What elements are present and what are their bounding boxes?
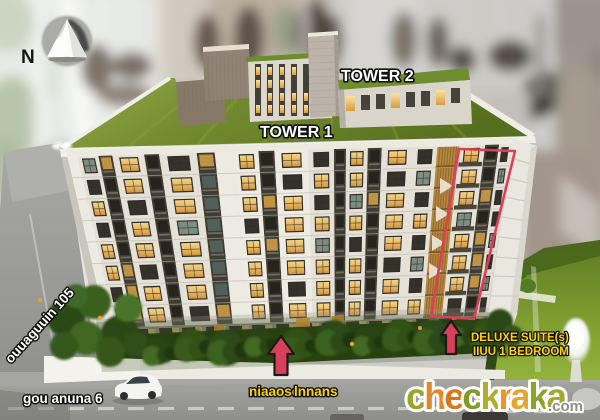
svg-text:IIUU 1 BEDROOM: IIUU 1 BEDROOM: [473, 346, 569, 358]
svg-text:lnnans: lnnans: [294, 384, 338, 399]
svg-text:DELUXE SUITE(s): DELUXE SUITE(s): [471, 332, 569, 344]
svg-text:TOWER 2: TOWER 2: [341, 68, 414, 85]
svg-text:checkraka: checkraka: [406, 376, 567, 417]
svg-text:.com: .com: [548, 398, 583, 415]
svg-text:N: N: [21, 47, 35, 68]
svg-text:TOWER 1: TOWER 1: [260, 124, 333, 141]
svg-text:niaaoso: niaaoso: [249, 384, 300, 399]
svg-text:gou anuna 6: gou anuna 6: [23, 391, 103, 406]
